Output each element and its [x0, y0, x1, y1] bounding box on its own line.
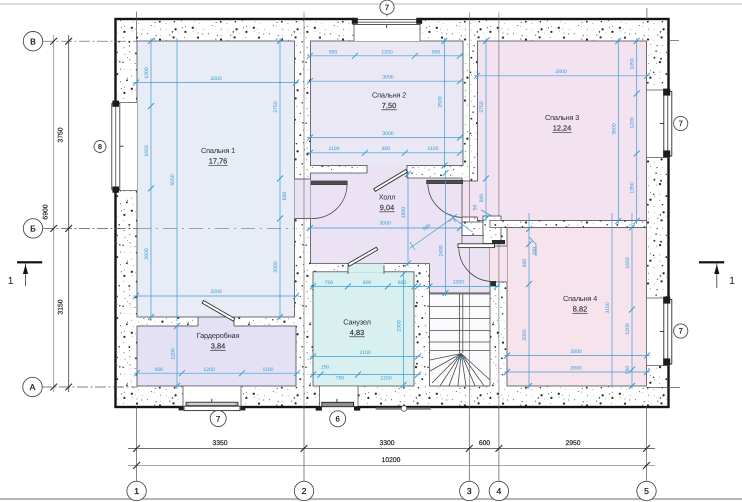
svg-text:7: 7: [679, 119, 683, 128]
svg-text:2500: 2500: [437, 96, 443, 107]
svg-text:А: А: [30, 382, 36, 392]
svg-text:300: 300: [532, 247, 538, 256]
svg-text:50: 50: [473, 205, 479, 211]
svg-text:1050: 1050: [630, 58, 636, 69]
svg-text:3300: 3300: [379, 440, 394, 447]
svg-text:Спальня 3: Спальня 3: [545, 113, 579, 122]
svg-text:6900: 6900: [43, 204, 50, 219]
svg-text:1100: 1100: [263, 367, 274, 373]
svg-text:3150: 3150: [58, 299, 65, 314]
svg-text:1200: 1200: [380, 375, 391, 381]
svg-text:Гардеробная: Гардеробная: [197, 331, 240, 340]
svg-text:3200: 3200: [210, 76, 221, 82]
svg-text:7: 7: [679, 327, 683, 336]
svg-text:3750: 3750: [58, 127, 65, 142]
svg-text:4,83: 4,83: [350, 328, 364, 337]
svg-text:2950: 2950: [565, 440, 580, 447]
svg-text:7,50: 7,50: [382, 101, 396, 110]
svg-text:500: 500: [625, 366, 631, 375]
svg-text:1800: 1800: [401, 207, 407, 218]
svg-text:1350: 1350: [630, 182, 636, 193]
svg-text:1200: 1200: [625, 323, 631, 334]
svg-text:Санузел: Санузел: [343, 318, 370, 327]
svg-text:600: 600: [479, 440, 491, 447]
svg-text:3150: 3150: [605, 302, 611, 313]
svg-text:3000: 3000: [379, 221, 390, 227]
svg-text:800: 800: [382, 146, 391, 152]
svg-text:1100: 1100: [428, 146, 439, 152]
svg-text:2000: 2000: [273, 261, 279, 272]
svg-text:1200: 1200: [630, 117, 636, 128]
svg-text:2300: 2300: [396, 320, 402, 331]
svg-text:150: 150: [321, 364, 330, 370]
svg-text:2750: 2750: [273, 101, 279, 112]
svg-text:1200: 1200: [203, 367, 214, 373]
svg-text:2800: 2800: [570, 349, 581, 355]
svg-text:9,04: 9,04: [380, 203, 394, 212]
svg-text:17,76: 17,76: [209, 157, 228, 166]
svg-text:1300: 1300: [144, 67, 150, 78]
svg-text:Спальня 1: Спальня 1: [201, 146, 235, 155]
svg-text:8: 8: [98, 144, 102, 151]
svg-text:Спальня 2: Спальня 2: [372, 91, 406, 100]
svg-text:750: 750: [336, 375, 345, 381]
svg-text:700: 700: [325, 280, 334, 286]
svg-text:7: 7: [385, 3, 389, 12]
svg-text:1650: 1650: [625, 257, 631, 268]
svg-text:600: 600: [398, 280, 407, 286]
svg-text:2750: 2750: [479, 101, 485, 112]
svg-text:1350: 1350: [453, 279, 464, 285]
svg-text:1650: 1650: [144, 145, 150, 156]
svg-text:6: 6: [336, 415, 340, 424]
svg-text:900: 900: [329, 49, 338, 55]
svg-text:5: 5: [644, 486, 649, 496]
svg-text:800: 800: [282, 192, 288, 201]
svg-text:В: В: [30, 36, 36, 46]
svg-text:3350: 3350: [212, 440, 227, 447]
svg-text:5550: 5550: [170, 174, 176, 185]
svg-text:1200: 1200: [171, 348, 177, 359]
svg-text:800: 800: [363, 280, 372, 286]
svg-text:900: 900: [432, 49, 441, 55]
svg-text:Спальня 4: Спальня 4: [563, 294, 597, 303]
svg-text:3400: 3400: [555, 69, 566, 75]
svg-text:1250: 1250: [455, 356, 466, 362]
svg-text:1: 1: [8, 275, 14, 287]
svg-text:4: 4: [497, 486, 502, 496]
svg-text:3600: 3600: [611, 123, 617, 134]
svg-text:1: 1: [729, 275, 735, 287]
svg-text:3: 3: [467, 486, 472, 496]
svg-text:900: 900: [155, 367, 164, 373]
svg-text:2100: 2100: [359, 350, 370, 356]
svg-text:2050: 2050: [522, 329, 528, 340]
svg-text:2800: 2800: [570, 365, 581, 371]
svg-text:3,84: 3,84: [211, 342, 225, 351]
svg-text:3200: 3200: [210, 289, 221, 295]
svg-text:1200: 1200: [381, 49, 392, 55]
svg-text:3000: 3000: [382, 75, 393, 81]
svg-text:800: 800: [522, 259, 528, 268]
svg-text:Б: Б: [30, 223, 36, 233]
svg-text:1100: 1100: [329, 146, 340, 152]
svg-text:7: 7: [216, 414, 220, 423]
svg-text:12,24: 12,24: [553, 124, 572, 133]
svg-text:3000: 3000: [382, 131, 393, 137]
svg-text:Холл: Холл: [379, 193, 396, 202]
svg-text:2400: 2400: [438, 245, 444, 256]
svg-text:10200: 10200: [382, 457, 401, 464]
svg-text:2600: 2600: [144, 248, 150, 259]
svg-text:8,82: 8,82: [573, 305, 587, 314]
svg-text:800: 800: [479, 194, 485, 203]
svg-text:1: 1: [134, 486, 139, 496]
svg-text:2: 2: [302, 486, 307, 496]
